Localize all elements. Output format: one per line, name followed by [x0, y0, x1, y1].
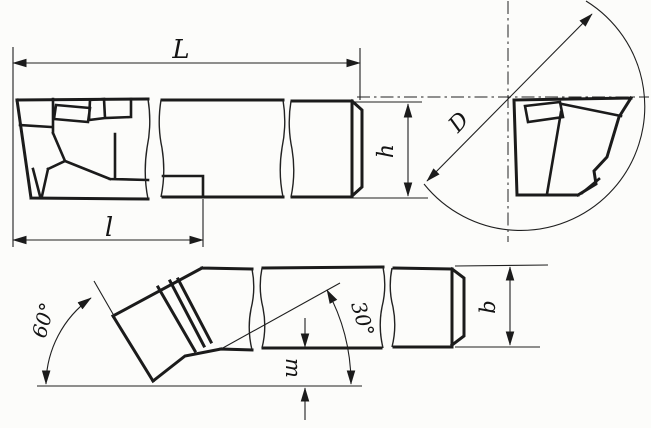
label-shank-height: h: [374, 144, 399, 158]
dimension-overall-length: L: [13, 35, 360, 247]
end-view-detail: [525, 102, 621, 194]
dimension-angle-main: 60°: [27, 298, 91, 384]
label-angle-main: 60°: [27, 300, 59, 340]
plan-view-insert-lines: [158, 279, 211, 351]
side-view-step: [163, 176, 203, 197]
side-view-shank-mid: [162, 100, 283, 197]
label-overall-length: L: [171, 35, 189, 65]
label-diameter: D: [443, 107, 474, 138]
angle-30-ray: [221, 283, 340, 349]
dimension-head-length: l: [13, 199, 203, 247]
extension-lines: [13, 47, 360, 247]
break-lines-side: [145, 99, 294, 199]
end-view-outline: [514, 98, 631, 195]
technical-drawing: L l h D 60°: [0, 0, 651, 428]
dimension-tip-offset: m: [281, 318, 305, 420]
angle-60-ray: [94, 281, 117, 321]
label-angle-secondary: 30°: [346, 298, 379, 339]
dimension-shank-width: b: [455, 265, 548, 347]
extension-lines: [455, 265, 548, 347]
end-view: D: [357, 1, 649, 242]
drawing-sheet: L l h D 60°: [0, 0, 651, 428]
side-view-shank-end: [292, 101, 362, 197]
dimension-angle-secondary: 30°: [327, 290, 379, 384]
side-view-head-detail: [20, 99, 148, 196]
plan-view: [37, 267, 464, 386]
plan-view-shank-end: [394, 268, 464, 347]
label-shank-width: b: [476, 300, 500, 313]
label-head-length: l: [105, 213, 113, 243]
label-tip-offset: m: [281, 358, 305, 378]
side-view: [17, 99, 362, 199]
